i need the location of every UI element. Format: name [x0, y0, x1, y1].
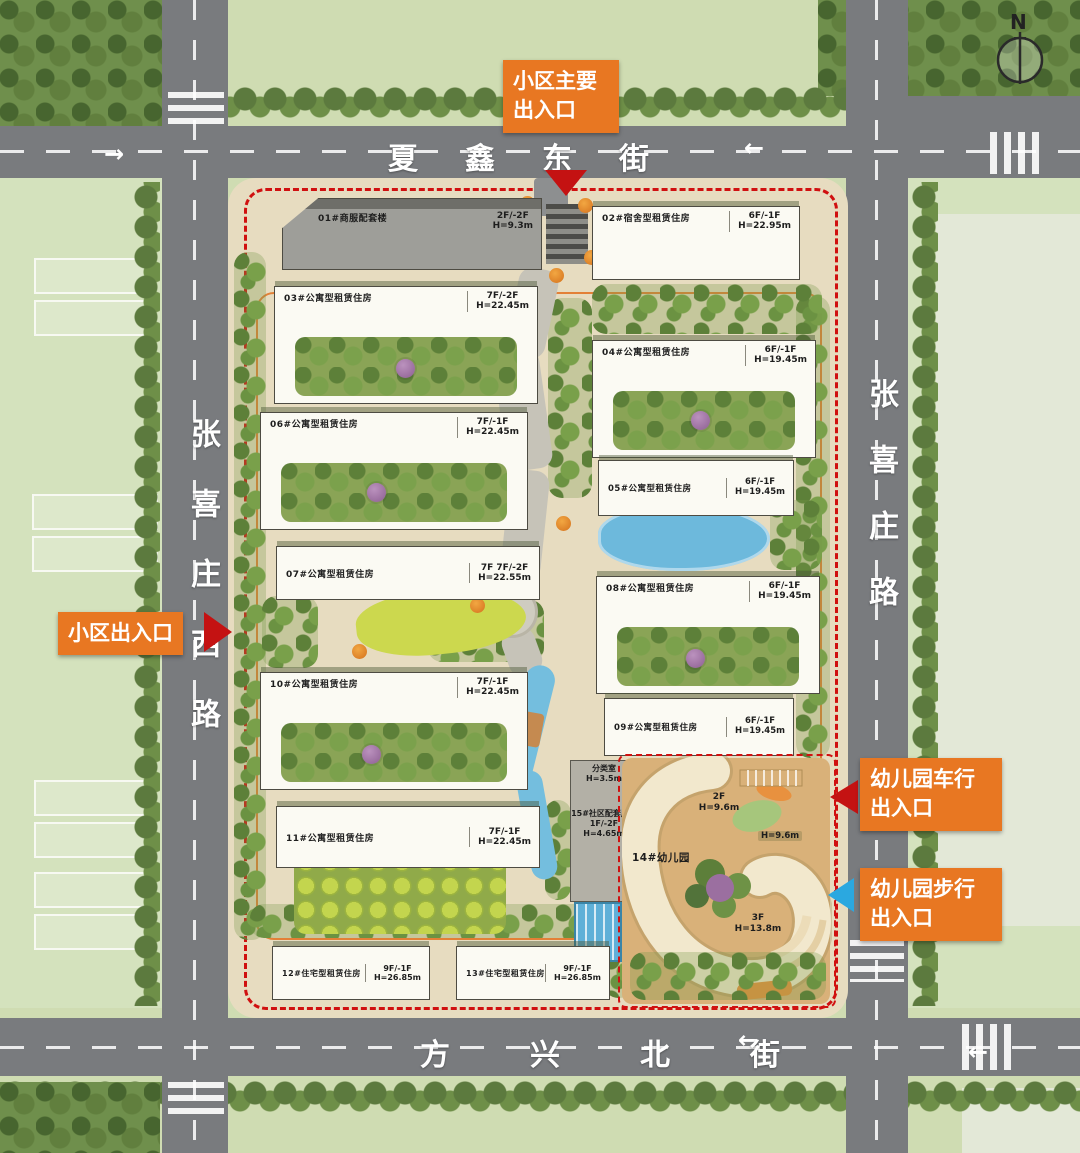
- building-06: 06#公寓型租赁住房 7F/-1F H=22.45m: [260, 412, 528, 530]
- courtyard-garden: [617, 627, 799, 686]
- purple-tree: [367, 483, 386, 502]
- tree-strip: [548, 298, 592, 498]
- courtyard-garden: [281, 463, 507, 522]
- street-name-top: 夏鑫东街: [388, 134, 696, 178]
- main-entrance-arrow-icon: [545, 170, 587, 196]
- kindergarten-wing-b-height: H=9.6m: [758, 831, 802, 841]
- building-06-floors: 7F/-1F: [466, 417, 519, 427]
- lane-arrow-icon: ←: [968, 1040, 988, 1064]
- callout-kg-walk-entrance: 幼儿园步行出入口: [860, 868, 1002, 941]
- building-01-name: 01#商服配套楼: [292, 211, 387, 224]
- building-03-floors: 7F/-2F: [476, 291, 529, 301]
- building-02-spec: 6F/-1F H=22.95m: [729, 211, 791, 232]
- building-02: 02#宿舍型租赁住房 6F/-1F H=22.95m: [592, 206, 800, 280]
- kg-walk-entrance-arrow-icon: [828, 878, 854, 912]
- building-03-name: 03#公寓型租赁住房: [284, 291, 372, 304]
- building-07-floors: 7F 7F/-2F: [478, 563, 531, 573]
- purple-tree: [362, 745, 381, 764]
- courtyard-garden: [281, 723, 507, 782]
- crosswalk: [168, 1082, 224, 1120]
- kindergarten-wing-a-label: 2F H=9.6m: [690, 792, 748, 814]
- building-11-spec: 7F/-1F H=22.45m: [469, 827, 531, 848]
- tree-cluster: [0, 0, 165, 128]
- building-13: 13#住宅型租赁住房 9F/-1F H=26.85m: [456, 946, 610, 1000]
- building-05-name: 05#公寓型租赁住房: [608, 482, 691, 494]
- purple-tree: [691, 411, 710, 430]
- callout-main-entrance: 小区主要出入口: [503, 60, 619, 133]
- building-13-floors: 9F/-1F: [554, 964, 601, 973]
- kindergarten-name: 14#幼儿园: [632, 850, 690, 865]
- building-13-name: 13#住宅型租赁住房: [466, 968, 545, 979]
- building-01-floors: 2F/-2F: [493, 211, 533, 221]
- building-10-height: H=22.45m: [466, 687, 519, 697]
- kindergarten-wing-a-floors: 2F: [690, 792, 748, 803]
- building-10-name: 10#公寓型租赁住房: [270, 677, 358, 690]
- building-04-floors: 6F/-1F: [754, 345, 807, 355]
- building-03-spec: 7F/-2F H=22.45m: [467, 291, 529, 312]
- kindergarten-wing-b-label: H=9.6m: [758, 831, 802, 841]
- building-10-floors: 7F/-1F: [466, 677, 519, 687]
- accent-tree: [556, 516, 571, 531]
- building-02-name: 02#宿舍型租赁住房: [602, 211, 690, 224]
- building-07: 07#公寓型租赁住房 7F 7F/-2F H=22.55m: [276, 546, 540, 600]
- building-07-name: 07#公寓型租赁住房: [286, 567, 374, 580]
- building-03: 03#公寓型租赁住房 7F/-2F H=22.45m: [274, 286, 538, 404]
- compass-icon: [992, 30, 1048, 86]
- building-11-height: H=22.45m: [478, 837, 531, 847]
- building-13-spec: 9F/-1F H=26.85m: [545, 964, 601, 982]
- building-11-name: 11#公寓型租赁住房: [286, 831, 374, 844]
- building-09: 09#公寓型租赁住房 6F/-1F H=19.45m: [604, 698, 794, 756]
- building-05-height: H=19.45m: [735, 488, 785, 498]
- building-09-height: H=19.45m: [735, 727, 785, 737]
- building-08-floors: 6F/-1F: [758, 581, 811, 591]
- building-12: 12#住宅型租赁住房 9F/-1F H=26.85m: [272, 946, 430, 1000]
- purple-tree: [686, 649, 705, 668]
- kindergarten-wing-c-height: H=13.8m: [728, 924, 788, 935]
- tree-strip: [592, 284, 822, 334]
- building-01-height: H=9.3m: [493, 221, 533, 231]
- tree-strip: [262, 596, 318, 668]
- building-11: 11#公寓型租赁住房 7F/-1F H=22.45m: [276, 806, 540, 868]
- kindergarten-wing-c-floors: 3F: [728, 913, 788, 924]
- building-01: 01#商服配套楼 2F/-2F H=9.3m: [282, 198, 542, 270]
- road-top-branch: [905, 96, 1080, 134]
- building-08-spec: 6F/-1F H=19.45m: [749, 581, 811, 602]
- building-02-height: H=22.95m: [738, 221, 791, 231]
- site-plan: ← → ← ← 夏鑫东街 方兴北街 张喜庄西路 张喜庄路 01#商服配套楼: [0, 0, 1080, 1153]
- building-11-floors: 7F/-1F: [478, 827, 531, 837]
- lane-arrow-icon: →: [104, 142, 124, 166]
- building-05: 05#公寓型租赁住房 6F/-1F H=19.45m: [598, 460, 794, 516]
- building-12-floors: 9F/-1F: [374, 964, 421, 973]
- building-09-spec: 6F/-1F H=19.45m: [726, 717, 785, 737]
- building-10-spec: 7F/-1F H=22.45m: [457, 677, 519, 698]
- accent-tree: [470, 598, 485, 613]
- tree-strip: [234, 252, 266, 940]
- building-08: 08#公寓型租赁住房 6F/-1F H=19.45m: [596, 576, 820, 694]
- building-04-height: H=19.45m: [754, 355, 807, 365]
- callout-kg-car-entrance: 幼儿园车行出入口: [860, 758, 1002, 831]
- street-name-bottom: 方兴北街: [420, 1030, 860, 1074]
- building-04: 04#公寓型租赁住房 6F/-1F H=19.45m: [592, 340, 816, 458]
- building-07-spec: 7F 7F/-2F H=22.55m: [469, 563, 531, 584]
- lane-arrow-icon: ←: [744, 136, 764, 160]
- building-04-spec: 6F/-1F H=19.45m: [745, 345, 807, 366]
- building-09-name: 09#公寓型租赁住房: [614, 721, 697, 733]
- crosswalk: [168, 92, 224, 126]
- building-05-spec: 6F/-1F H=19.45m: [726, 478, 785, 498]
- building-06-name: 06#公寓型租赁住房: [270, 417, 358, 430]
- building-01-spec: 2F/-2F H=9.3m: [485, 211, 533, 232]
- kindergarten-wing-c-label: 3F H=13.8m: [728, 913, 788, 935]
- building-13-height: H=26.85m: [554, 973, 601, 982]
- accent-tree: [578, 198, 593, 213]
- street-name-left: 张喜庄西路: [180, 418, 224, 768]
- kindergarten-wing-a-height: H=9.6m: [690, 803, 748, 814]
- building-01-roof-strip: [283, 199, 541, 209]
- tree-cluster: [0, 1082, 160, 1153]
- building-10: 10#公寓型租赁住房 7F/-1F H=22.45m: [260, 672, 528, 790]
- parking-stalls: [546, 204, 588, 264]
- building-08-height: H=19.45m: [758, 591, 811, 601]
- building-06-height: H=22.45m: [466, 427, 519, 437]
- building-04-name: 04#公寓型租赁住房: [602, 345, 690, 358]
- building-12-spec: 9F/-1F H=26.85m: [365, 964, 421, 982]
- building-12-height: H=26.85m: [374, 973, 421, 982]
- building-07-height: H=22.55m: [478, 573, 531, 583]
- building-12-name: 12#住宅型租赁住房: [282, 968, 361, 979]
- callout-side-entrance: 小区出入口: [58, 612, 183, 655]
- building-06-spec: 7F/-1F H=22.45m: [457, 417, 519, 438]
- crosswalk: [850, 940, 904, 982]
- street-name-right: 张喜庄路: [858, 378, 902, 642]
- accent-tree: [352, 644, 367, 659]
- building-03-height: H=22.45m: [476, 301, 529, 311]
- side-entrance-arrow-icon: [204, 612, 232, 652]
- tree-strip: [630, 952, 826, 1000]
- crosswalk: [990, 132, 1042, 174]
- building-08-name: 08#公寓型租赁住房: [606, 581, 694, 594]
- kg-car-entrance-arrow-icon: [830, 780, 858, 814]
- tree-row: [132, 182, 160, 1006]
- accent-tree: [549, 268, 564, 283]
- building-02-floors: 6F/-1F: [738, 211, 791, 221]
- purple-tree: [396, 359, 415, 378]
